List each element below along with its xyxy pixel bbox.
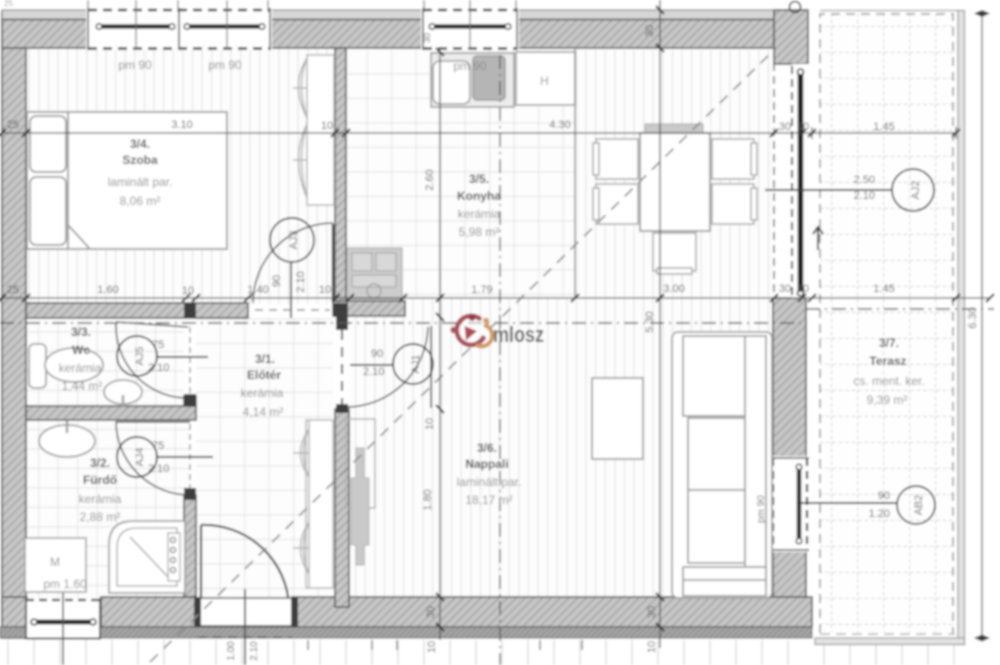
svg-text:3/7.: 3/7. [879, 336, 899, 350]
svg-text:30: 30 [779, 121, 791, 133]
svg-text:Fürdő: Fürdő [83, 473, 117, 487]
svg-text:18,17 m²: 18,17 m² [465, 493, 512, 507]
svg-text:1.45: 1.45 [873, 283, 894, 295]
svg-text:10: 10 [182, 285, 194, 297]
svg-text:pm 90: pm 90 [208, 58, 242, 72]
svg-text:Szoba: Szoba [122, 153, 158, 167]
svg-text:M: M [50, 555, 60, 569]
svg-text:AJ5: AJ5 [134, 347, 146, 366]
svg-text:H: H [540, 74, 549, 88]
svg-text:3/6.: 3/6. [477, 441, 497, 455]
svg-text:3/2.: 3/2. [90, 456, 110, 470]
svg-text:1,44 m²: 1,44 m² [62, 379, 103, 393]
svg-text:6.30: 6.30 [967, 307, 979, 328]
svg-text:kerámia: kerámia [59, 361, 102, 375]
svg-text:30: 30 [779, 283, 791, 295]
svg-text:pm 90: pm 90 [118, 58, 152, 72]
svg-text:10: 10 [797, 121, 809, 133]
svg-text:10: 10 [797, 283, 809, 295]
svg-text:kerámia: kerámia [241, 386, 284, 400]
svg-text:Terasz: Terasz [869, 354, 906, 368]
svg-text:3.00: 3.00 [663, 283, 684, 295]
svg-text:90: 90 [271, 275, 283, 287]
svg-text:2.10: 2.10 [295, 271, 307, 292]
svg-text:pm 90: pm 90 [756, 495, 767, 523]
svg-text:pm 90: pm 90 [453, 59, 487, 73]
svg-text:2.10: 2.10 [148, 463, 169, 475]
svg-text:AJ3: AJ3 [288, 231, 300, 250]
svg-text:Konyha: Konyha [457, 189, 501, 203]
svg-text:Előtér: Előtér [247, 368, 281, 382]
svg-text:10: 10 [424, 418, 436, 430]
svg-text:4.30: 4.30 [549, 119, 570, 131]
svg-text:pm 1.60: pm 1.60 [43, 577, 87, 591]
svg-text:2.50: 2.50 [854, 174, 875, 186]
svg-text:kerámia: kerámia [79, 492, 122, 506]
svg-text:3/5.: 3/5. [469, 172, 489, 186]
svg-text:2.10: 2.10 [363, 366, 384, 378]
svg-text:10: 10 [426, 641, 438, 653]
svg-text:laminált par.: laminált par. [108, 175, 173, 189]
svg-text:2.10: 2.10 [249, 641, 260, 661]
svg-text:4,14 m²: 4,14 m² [243, 405, 284, 419]
svg-text:25: 25 [7, 119, 19, 131]
svg-text:1.00: 1.00 [226, 641, 237, 661]
svg-text:5.30: 5.30 [644, 311, 656, 332]
svg-text:5,98 m²: 5,98 m² [459, 225, 500, 239]
svg-text:1.45: 1.45 [873, 121, 894, 133]
svg-text:mlosz: mlosz [493, 322, 544, 347]
svg-text:75: 75 [152, 440, 164, 452]
svg-text:3/3.: 3/3. [71, 325, 91, 339]
svg-text:3.10: 3.10 [171, 119, 192, 131]
svg-text:8,06 m²: 8,06 m² [120, 194, 161, 208]
svg-text:10: 10 [319, 284, 331, 296]
svg-text:9,39 m²: 9,39 m² [867, 393, 908, 407]
svg-text:30: 30 [422, 33, 432, 43]
svg-text:90: 90 [371, 348, 383, 360]
svg-text:2.10: 2.10 [148, 362, 169, 374]
svg-text:1.40: 1.40 [247, 284, 268, 296]
svg-text:AJ4: AJ4 [134, 448, 146, 467]
svg-text:90: 90 [878, 490, 890, 502]
svg-text:Wc: Wc [72, 343, 90, 357]
svg-text:30: 30 [644, 25, 656, 37]
svg-text:cs. ment. ker.: cs. ment. ker. [853, 374, 924, 388]
svg-text:30: 30 [425, 606, 437, 618]
svg-text:AJ2: AJ2 [910, 181, 922, 200]
svg-text:25: 25 [4, 0, 13, 8]
svg-text:30: 30 [646, 606, 658, 618]
svg-text:2.60: 2.60 [424, 169, 436, 190]
svg-text:2.10: 2.10 [854, 190, 875, 202]
svg-text:75: 75 [152, 339, 164, 351]
svg-text:10: 10 [646, 641, 658, 653]
svg-text:2,88 m²: 2,88 m² [80, 510, 121, 524]
svg-text:laminált par.: laminált par. [457, 475, 522, 489]
svg-text:Nappali: Nappali [465, 457, 508, 471]
svg-text:3/4.: 3/4. [130, 137, 150, 151]
svg-text:25: 25 [7, 284, 19, 296]
svg-text:AB2: AB2 [913, 495, 925, 516]
svg-text:1.20: 1.20 [869, 508, 890, 520]
svg-text:1.60: 1.60 [97, 284, 118, 296]
svg-text:AJ1: AJ1 [410, 355, 422, 374]
svg-text:1.80: 1.80 [422, 489, 434, 510]
svg-text:10: 10 [321, 120, 333, 132]
svg-text:1.79: 1.79 [471, 284, 492, 296]
svg-text:kerámia: kerámia [458, 207, 501, 221]
svg-text:3/1.: 3/1. [255, 352, 275, 366]
